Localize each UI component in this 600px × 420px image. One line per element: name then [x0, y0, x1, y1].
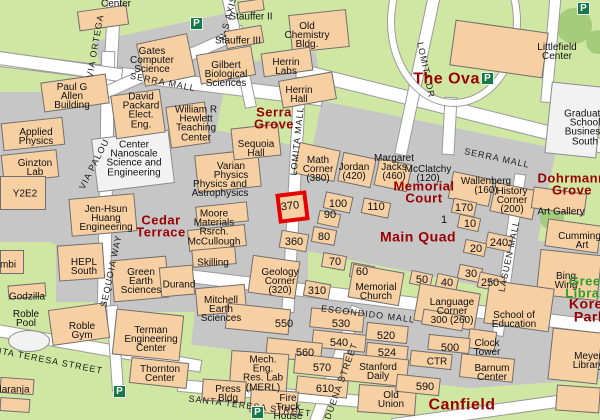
area-label-canfield: Canfield: [428, 397, 495, 412]
building-label-applied-physics: AppliedPhysics: [19, 128, 53, 146]
building-number-70: 70: [329, 256, 341, 268]
building-label-varian-physics: VarianPhysics: [214, 162, 248, 180]
building-number-30: 30: [465, 268, 477, 280]
parking-icon: P: [577, 2, 590, 15]
area-label-korea-park: KoreaPark: [569, 298, 600, 325]
building-number-520: 520: [377, 330, 395, 342]
building-label-stauffer-ii: Stauffer II: [229, 12, 272, 21]
building-number-40: 40: [441, 277, 453, 289]
building-label-thornton-center: ThorntonCenter: [140, 365, 180, 383]
building-label-roble-pool: RoblePool: [13, 310, 39, 328]
building-label-herrin-hall: HerrinHall: [285, 86, 312, 104]
building-label-barnum-center: BarnumCenter: [474, 364, 509, 382]
building-label-history-corner: HistoryCorner(200): [496, 187, 527, 215]
area-label-cedar-terrace: CedarTerrace: [136, 215, 186, 240]
building: [0, 397, 30, 413]
building-label-skilling: Skilling: [197, 258, 229, 267]
building-number-524: 524: [378, 347, 396, 359]
building-label-durand: Durand: [163, 280, 196, 289]
building-label-language-corner: LanguageCorner300 (260): [430, 298, 475, 326]
area-label-memorial-court: MemorialCourt: [393, 181, 454, 206]
building-label-geology-corner: GeologyCorner(320): [261, 268, 298, 296]
building-label-gates-computer-science: GatesComputerScience: [130, 47, 174, 75]
building-label-paul-g-allen-building: Paul GAllenBuilding: [54, 83, 90, 111]
building-label-mitchell-earth-sciences: MitchellEarthSciences: [201, 296, 242, 324]
area-label-the-oval: The Oval: [413, 71, 485, 86]
parking-icon: P: [190, 17, 203, 30]
building-label-center-nanoscale-science-engineering: CenterNanoscaleScience andEngineering: [106, 141, 161, 178]
building-label-fire-truck-house: FireTruckHouse: [274, 394, 303, 420]
building-number-590: 590: [416, 381, 434, 393]
building-number-540: 540: [330, 337, 348, 349]
building-label-cummings-art: CummingsArt: [558, 232, 600, 250]
building-label-david-packard-elect-eng: DavidPackardElect.Eng.: [123, 93, 160, 130]
building-label-hepl-south: HEPLSouth: [71, 258, 97, 276]
highlighted-building-370: 370: [275, 190, 309, 224]
building-label-ginzton-lab: GinztonLab: [18, 159, 52, 177]
building-label-stauffer-iii: Stauffer III: [215, 36, 261, 45]
building-number-90: 90: [324, 209, 336, 221]
building-number-240: 240: [490, 237, 508, 249]
building-label-green-earth-sciences: GreenEarthSciences: [121, 268, 162, 296]
building-number-80: 80: [318, 231, 330, 243]
parking-icon: P: [113, 385, 126, 398]
area-label-serra-grove: SerraGrove: [254, 107, 294, 132]
building-number-500: 500: [441, 342, 459, 354]
building-label-mech-eng-res-lab-merl: Mech.Eng.Res. Lab(MERL): [243, 356, 283, 393]
parking-icon: P: [251, 406, 264, 419]
building-label-y2e2: Y2E2: [13, 189, 37, 198]
building-number-110: 110: [367, 201, 385, 213]
building-label-stanford-daily: StanfordDaily: [359, 363, 397, 381]
building-label-school-of-education: School ofEducation: [492, 311, 536, 329]
building-number-610: 610: [316, 383, 334, 395]
building-label-moore-materials-rsrch-mccullough: MooreMaterialsRsrch.McCullough: [188, 210, 241, 247]
building-label-sequoia-hall: SequoiaHall: [238, 140, 275, 158]
building-label-naranja: Naranja: [0, 385, 30, 394]
building-number-550: 550: [275, 318, 293, 330]
building-label-press-bldg: PressBldg: [215, 385, 241, 403]
building-number-1: 1: [441, 214, 447, 226]
building: [555, 384, 600, 413]
building-number-560: 560: [296, 347, 314, 359]
building-label-william-r-hewlett-teaching-center: William RHewlettTeachingCenter: [175, 106, 217, 143]
building-label-old-chemistry-bldg: OldChemistryBldg.: [284, 22, 329, 50]
building-label-gilbert-biological-sciences: GilbertBiologicalSciences: [205, 61, 248, 89]
building-label-jen-hsun-huang-engineering: Jen-HsunHuangEngineering: [79, 205, 132, 233]
highlighted-building-label: 370: [280, 199, 300, 213]
building-number-60: 60: [356, 266, 368, 278]
area-label-main-quad: Main Quad: [380, 230, 456, 243]
building-label-herrin-labs: HerrinLabs: [272, 58, 299, 76]
area-label-green-library: GreenLibrary: [565, 276, 600, 301]
building-label-old-union: OldUnion: [378, 391, 404, 409]
parking-icon: P: [481, 72, 494, 85]
building-label-roble-gym: RobleGym: [69, 322, 95, 340]
building-label-clock-tower: ClockTower: [474, 339, 501, 357]
building-number-170: 170: [455, 202, 473, 214]
building-label-center: Center: [101, 0, 131, 9]
building-label-ctr: CTR: [427, 357, 448, 366]
building-label-godzilla: Godzilla: [9, 292, 45, 301]
campus-map[interactable]: 370VIA ORTEGAN-S AXISLOMITA DRSERRA MALL…: [0, 0, 600, 420]
building-number-310: 310: [308, 285, 326, 297]
building-number-250: 250: [481, 277, 499, 289]
building-number-50: 50: [416, 274, 428, 286]
building-number-20: 20: [470, 243, 482, 255]
building-label-physics-and-astrophysics: Physics andAstrophysics: [192, 180, 249, 198]
building-label-jordan: Jordan(420): [339, 163, 370, 181]
building-label-meyer-library: MeyerLibrary: [573, 352, 600, 370]
building-number-360: 360: [285, 236, 303, 248]
building-label-memorial-church: MemorialChurch: [355, 283, 396, 301]
building-label-terman-engineering-center: TermanEngineeringCenter: [124, 326, 177, 354]
building-number-530: 530: [332, 318, 350, 330]
building-label-littlefield-center: LittlefieldCenter: [537, 43, 576, 61]
building-number-10: 10: [464, 218, 476, 230]
area-label-dohrmann-grove: DohrmannGrove: [538, 173, 600, 198]
building-number-570: 570: [313, 362, 331, 374]
building-label-math-corner: MathCorner(380): [303, 156, 334, 184]
building-label-mbi: mbi: [0, 260, 16, 269]
building-label-art-gallery: Art Gallery: [537, 207, 584, 216]
tree: [586, 30, 600, 54]
building-label-graduate-school-business-south: GraduateSchoolBusinessSouth: [564, 110, 600, 147]
